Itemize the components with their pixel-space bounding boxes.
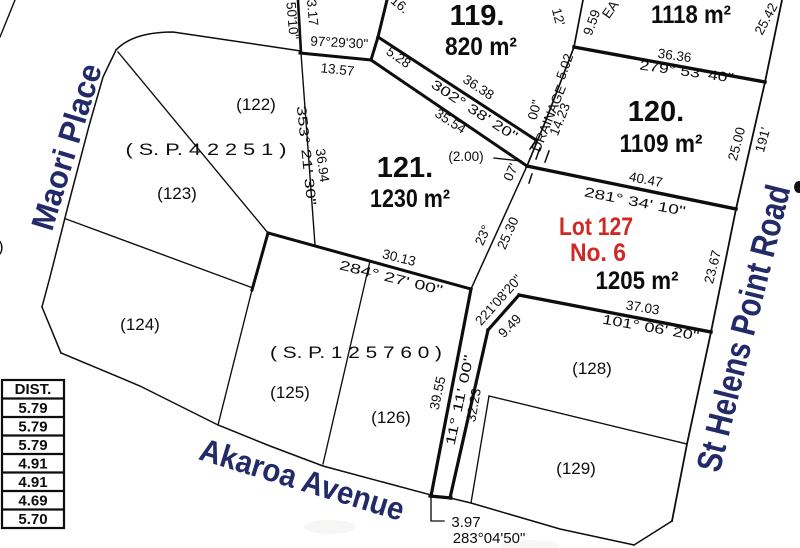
- svg-text:(126): (126): [371, 408, 411, 427]
- svg-text:( S. P. 4 2 2 5 1 ): ( S. P. 4 2 2 5 1 ): [126, 140, 287, 159]
- svg-text:Lot 127: Lot 127: [559, 213, 633, 241]
- svg-text:1109 m²: 1109 m²: [620, 130, 703, 158]
- svg-text:121.: 121.: [377, 152, 433, 184]
- svg-text:(124): (124): [120, 315, 160, 334]
- svg-text:1205 m²: 1205 m²: [596, 267, 679, 295]
- svg-text:97°29'30": 97°29'30": [310, 34, 369, 52]
- svg-text:( S. P. 1 2 5 7 6 0 ): ( S. P. 1 2 5 7 6 0 ): [270, 343, 442, 362]
- svg-text:4.69: 4.69: [18, 493, 47, 510]
- svg-text:5.79: 5.79: [18, 419, 47, 436]
- svg-text:No. 6: No. 6: [570, 239, 626, 267]
- svg-text:283°04'50": 283°04'50": [453, 530, 526, 547]
- svg-text:DIST.: DIST.: [15, 381, 52, 398]
- svg-text:1230 m²: 1230 m²: [370, 185, 450, 213]
- svg-text:120.: 120.: [628, 96, 684, 128]
- svg-text:(128): (128): [572, 359, 612, 378]
- svg-text:(129): (129): [556, 459, 596, 478]
- svg-text:5.79: 5.79: [18, 437, 47, 454]
- svg-text:): ): [0, 237, 4, 256]
- svg-text:5.79: 5.79: [18, 400, 47, 417]
- svg-text:4.91: 4.91: [18, 474, 47, 491]
- svg-text:3.17: 3.17: [304, 0, 321, 26]
- svg-text:820 m²: 820 m²: [445, 33, 517, 61]
- svg-text:5.70: 5.70: [18, 511, 47, 528]
- svg-text:4.91: 4.91: [18, 456, 47, 473]
- svg-text:119.: 119.: [450, 0, 505, 32]
- svg-text:3.97: 3.97: [451, 514, 480, 531]
- svg-text:(125): (125): [270, 383, 310, 402]
- svg-text:(2.00): (2.00): [448, 149, 483, 164]
- svg-text:1118 m²: 1118 m²: [651, 1, 731, 29]
- svg-text:(123): (123): [157, 184, 197, 203]
- svg-text:(122): (122): [236, 95, 276, 114]
